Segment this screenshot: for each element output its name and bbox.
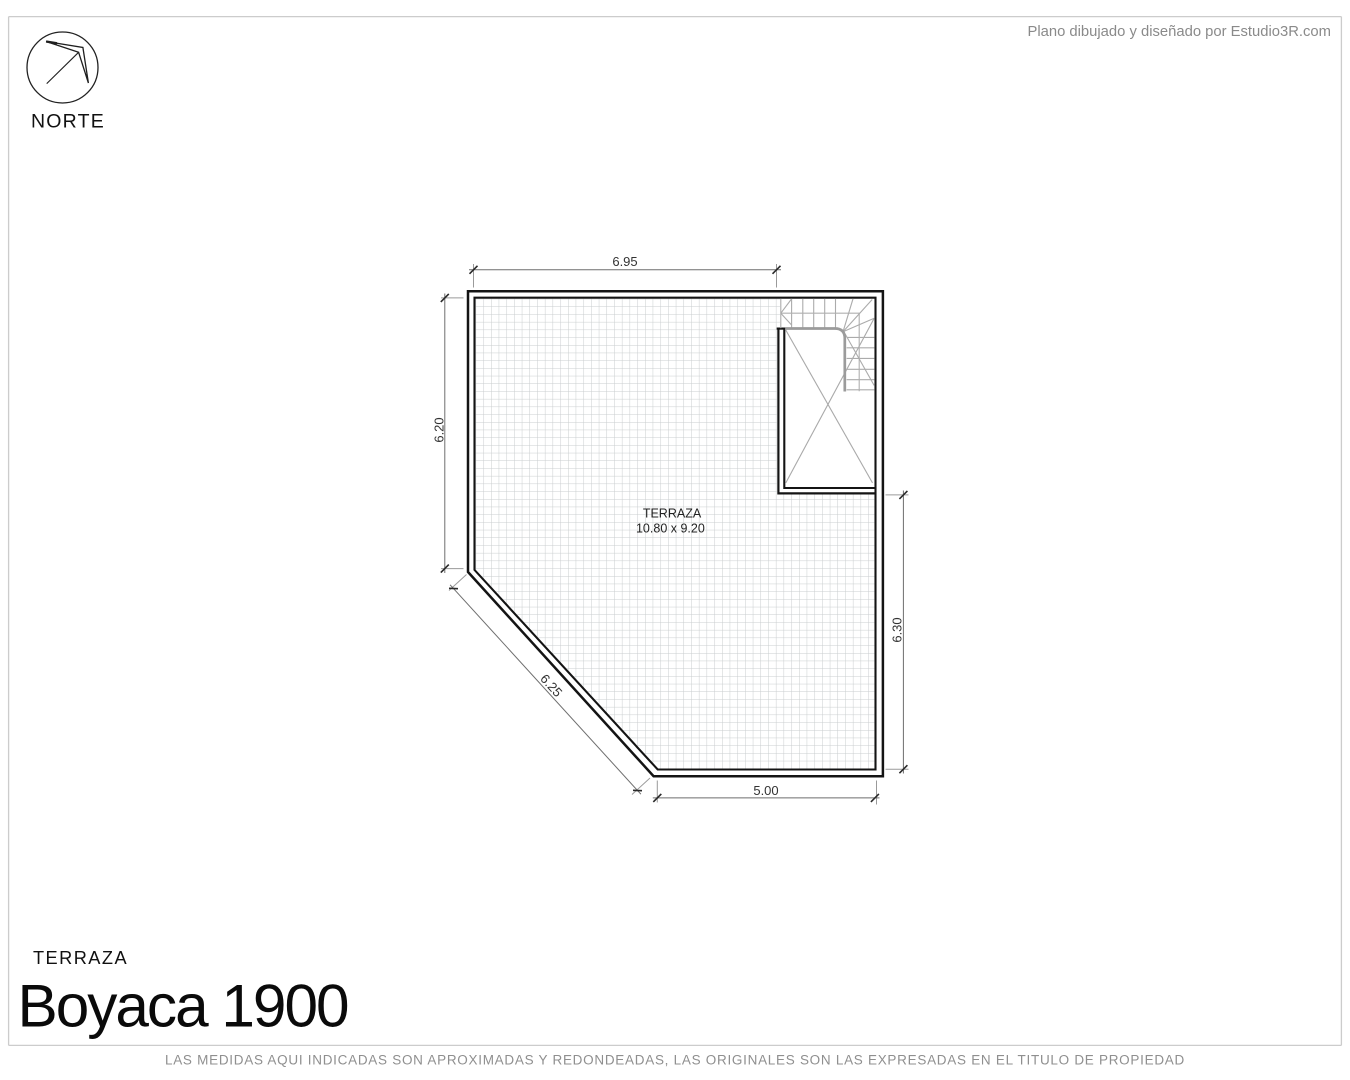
svg-text:TERRAZA: TERRAZA xyxy=(33,948,128,968)
svg-text:10.80 x 9.20: 10.80 x 9.20 xyxy=(636,522,705,536)
svg-text:NORTE: NORTE xyxy=(31,110,105,132)
svg-text:5.00: 5.00 xyxy=(753,783,778,798)
svg-text:6.30: 6.30 xyxy=(890,617,905,642)
svg-text:LAS MEDIDAS AQUI INDICADAS SON: LAS MEDIDAS AQUI INDICADAS SON APROXIMAD… xyxy=(165,1053,1185,1068)
svg-text:6.95: 6.95 xyxy=(612,254,637,269)
svg-text:Boyaca 1900: Boyaca 1900 xyxy=(18,972,348,1040)
svg-text:6.20: 6.20 xyxy=(432,417,447,442)
svg-text:TERRAZA: TERRAZA xyxy=(643,506,702,520)
svg-text:Plano dibujado y diseñado por: Plano dibujado y diseñado por Estudio3R.… xyxy=(1027,24,1331,40)
